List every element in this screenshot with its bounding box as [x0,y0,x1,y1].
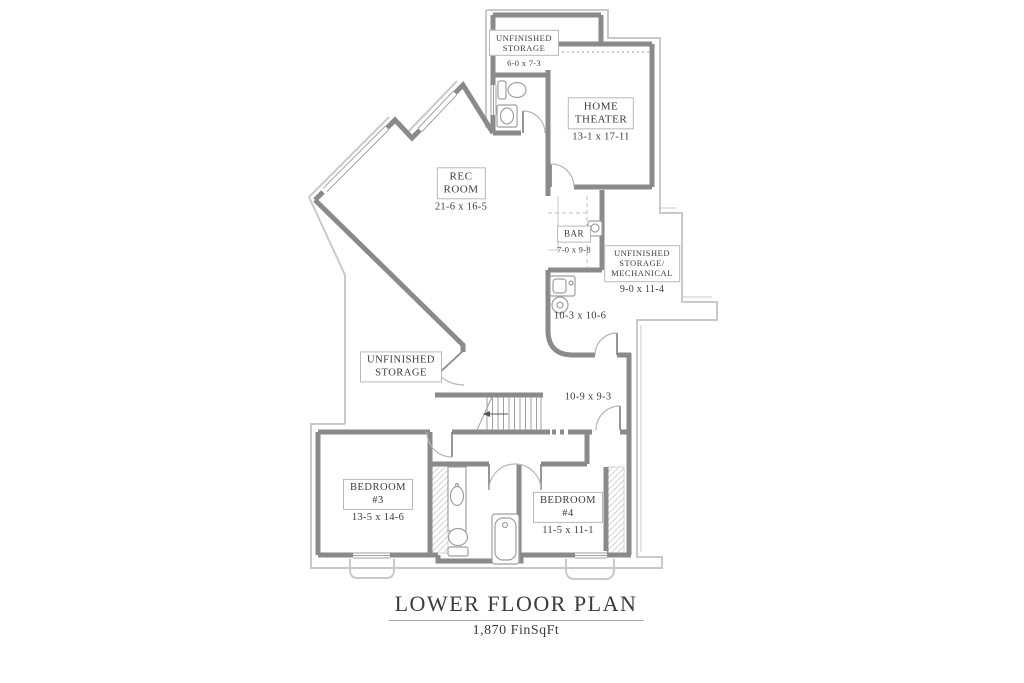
window-rec-diagonal-short [418,91,457,132]
room-dims: 21-6 x 16-5 [435,202,487,213]
room-label-unfinished-storage-top: UNFINISHED STORAGE 6-0 x 7-3 [489,30,559,68]
room-label-bar: BAR 7-0 x 9-8 [557,226,591,255]
room-dims: 13-1 x 17-11 [572,132,629,143]
plan-subtitle: 1,870 FinSqFt [389,623,644,639]
room-name: BEDROOM #4 [533,492,603,523]
room-label-lower-hall: 10-9 x 9-3 [565,392,612,403]
window-bath-top [489,85,497,115]
room-dims: 6-0 x 7-3 [507,58,541,68]
room-label-unfinished-storage-left: UNFINISHED STORAGE [360,351,442,382]
room-label-bedroom-3: BEDROOM #3 13-5 x 14-6 [343,479,413,523]
room-dims: 7-0 x 9-8 [557,244,591,254]
window-bedroom3 [353,551,390,559]
door-bath-top [523,111,545,133]
room-dims: 9-0 x 11-4 [620,284,664,295]
room-name: UNFINISHED STORAGE [489,30,559,56]
room-name: BAR [557,226,591,243]
room-label-bedroom-4: BEDROOM #4 11-5 x 11-1 [533,492,603,536]
door-bedroom4 [596,406,620,430]
room-dims: 10-9 x 9-3 [565,392,612,403]
bathtub [492,514,519,564]
stairs [477,397,541,430]
room-dims: 13-5 x 14-6 [352,512,404,523]
floor-plan-drawing [0,0,1024,683]
plan-title: LOWER FLOOR PLAN [389,591,644,621]
vanity-lower-bath [448,467,466,531]
room-label-rec-room: REC ROOM 21-6 x 16-5 [435,167,487,212]
window-rec-diagonal-long [323,126,389,192]
doors-bath-lower [489,464,541,490]
room-label-home-theater: HOME THEATER 13-1 x 17-11 [568,97,634,142]
window-bedroom4 [575,551,607,559]
door-home-theater [551,164,574,187]
room-name: UNFINISHED STORAGE/ MECHANICAL [604,245,680,282]
room-name: REC ROOM [436,167,485,199]
pedestal-sink-top [497,105,517,127]
room-label-utility-area: 10-3 x 10-6 [554,311,606,322]
laundry-tub [550,276,575,296]
room-name: UNFINISHED STORAGE [360,351,442,382]
floor-plan: UNFINISHED STORAGE 6-0 x 7-3 HOME THEATE… [0,0,1024,683]
toilet-lower-bath [448,529,468,557]
room-name: HOME THEATER [568,97,634,129]
room-dims: 10-3 x 10-6 [554,311,606,322]
room-label-unfinished-storage-mechanical: UNFINISHED STORAGE/ MECHANICAL 9-0 x 11-… [604,245,680,295]
room-name: BEDROOM #3 [343,479,413,510]
door-hall [595,333,617,355]
plan-title-block: LOWER FLOOR PLAN 1,870 FinSqFt [389,591,644,639]
toilet-top [498,81,526,99]
room-dims: 11-5 x 11-1 [542,525,594,536]
